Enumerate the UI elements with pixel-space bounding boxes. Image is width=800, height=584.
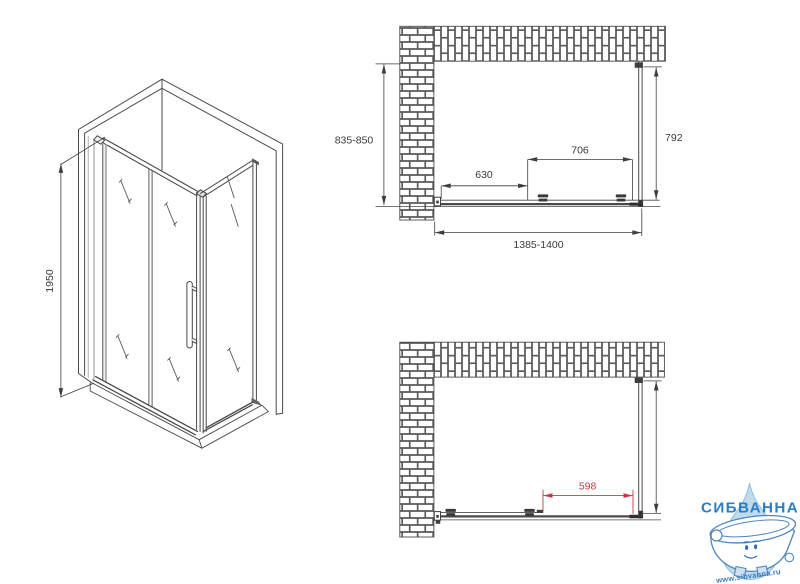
svg-text:835-850: 835-850 (335, 135, 374, 147)
svg-text:1385-1400: 1385-1400 (513, 239, 563, 251)
svg-text:1950: 1950 (44, 269, 56, 293)
svg-text:706: 706 (571, 145, 589, 157)
svg-text:630: 630 (475, 169, 493, 181)
svg-text:СИБВАННА: СИБВАННА (701, 499, 799, 516)
svg-text:792: 792 (665, 132, 683, 144)
svg-text:598: 598 (579, 480, 597, 492)
